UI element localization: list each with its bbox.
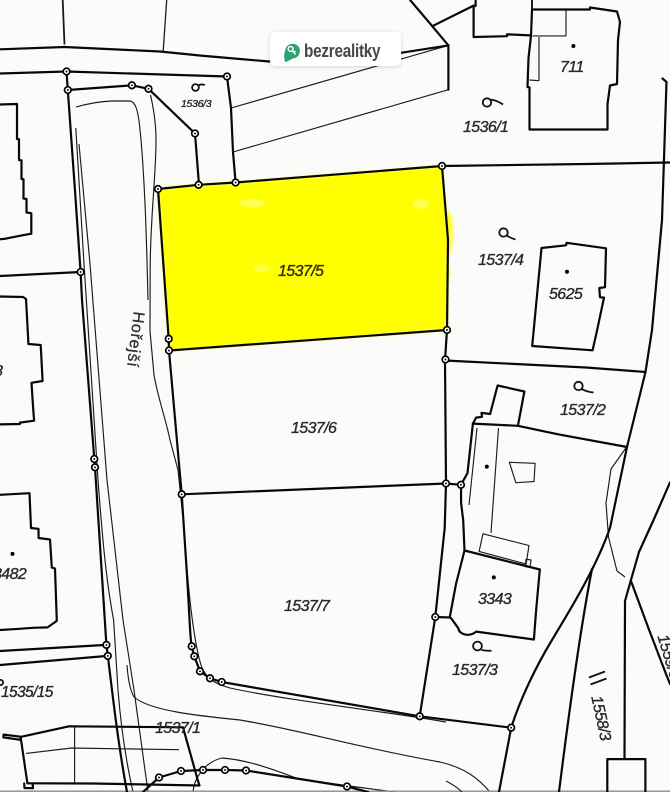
svg-text:1537/7: 1537/7 xyxy=(284,598,331,615)
svg-text:1536/3: 1536/3 xyxy=(181,98,212,110)
svg-text:1537/3: 1537/3 xyxy=(452,662,498,679)
svg-text:1537/1: 1537/1 xyxy=(155,720,200,737)
svg-text:1537/2: 1537/2 xyxy=(560,402,606,419)
svg-text:5625: 5625 xyxy=(549,286,583,303)
svg-text:1537/5: 1537/5 xyxy=(278,263,324,280)
svg-text:3343: 3343 xyxy=(478,591,512,608)
svg-text:1536/1: 1536/1 xyxy=(463,119,508,136)
svg-text:1537/6: 1537/6 xyxy=(291,420,337,437)
svg-text:711: 711 xyxy=(560,59,584,76)
svg-text:1535/15: 1535/15 xyxy=(1,684,54,701)
svg-text:1537/4: 1537/4 xyxy=(478,252,524,269)
svg-text:3482: 3482 xyxy=(0,566,27,583)
